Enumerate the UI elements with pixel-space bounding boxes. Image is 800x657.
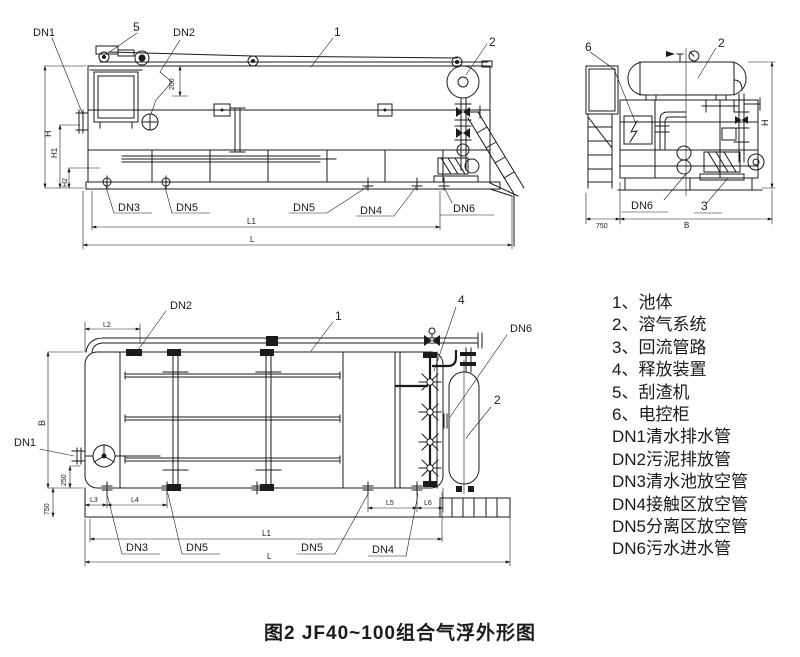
side-dn1-label: DN1 [33,27,55,39]
dn1-nozzle [76,110,88,133]
dim-l-label: L [250,235,255,244]
plan-part2-label: 2 [494,393,501,407]
scraper-mechanism [96,46,488,67]
end-part3-label: 3 [701,199,708,213]
drawing-page: H H1 H2 200 L1 L DN1 5 DN2 1 2 DN3 DN5 D… [0,0,800,657]
side-ladder [468,112,524,246]
plan-dn1-label: DN1 [14,437,36,449]
dim-h-label: H [43,131,53,138]
plan-dn6-label: DN6 [510,323,532,335]
end-part6-label: 6 [585,40,592,54]
plan-dim-750-label: 750 [44,503,51,515]
electric-panel [624,116,652,144]
recycle-pump [434,158,479,182]
end-dim-750-label: 750 [596,223,608,230]
legend-item: 5、刮渣机 [612,382,797,404]
side-dn3-label: DN3 [118,202,140,214]
side-part5-label: 5 [133,20,140,34]
plan-dim-l3-label: L3 [90,497,98,504]
air-dissolving-unit [447,66,480,170]
pressure-tank [628,51,746,100]
scraper-shafts [125,349,340,491]
plan-view-dimensions: L2 B 250 750 L3 L4 L5 L6 L1 L [37,322,510,566]
plan-dim-l6-label: L6 [424,500,432,507]
legend-item: 3、回流管路 [612,337,797,359]
parts-legend: 1、池体 2、溶气系统 3、回流管路 4、释放装置 5、刮渣机 6、电控柜 DN… [612,292,797,561]
side-view-linework [76,46,524,246]
plan-walkway [85,488,510,517]
plan-dim-250-label: 250 [61,474,68,486]
downcomer-pipe [230,108,245,152]
legend-item: 2、溶气系统 [612,314,797,336]
plan-dim-l2-label: L2 [103,322,111,329]
plan-dim-l1-label: L1 [262,529,271,538]
plan-part1-label: 1 [335,309,342,323]
end-ladder [588,114,612,188]
end-dn6-label: DN6 [631,200,653,212]
plan-dn5-left-label: DN5 [186,542,208,554]
side-dn5-right-label: DN5 [293,202,315,214]
legend-item: DN1清水排水管 [612,426,797,448]
dim-l1-label: L1 [247,217,256,226]
end-view-dimensions: H 750 B [586,62,775,230]
legend-item: DN6污水进水管 [612,538,797,560]
plan-view: L2 B 250 750 L3 L4 L5 L6 L1 L DN2 1 4 DN… [14,293,532,566]
control-cabinet [586,66,618,114]
side-view: H H1 H2 200 L1 L DN1 5 DN2 1 2 DN3 DN5 D… [33,20,524,249]
side-part2-label: 2 [489,35,496,49]
end-view: H 750 B 6 2 DN6 3 [585,36,775,230]
figure-caption: 图2 JF40~100组合气浮外形图 [0,618,800,645]
legend-item: 4、释放装置 [612,359,797,381]
plan-view-linework [72,328,510,517]
end-dim-h-label: H [760,120,770,127]
side-dn6-label: DN6 [453,203,475,215]
plan-dim-l4-label: L4 [131,497,139,504]
plan-dn4-label: DN4 [372,544,394,556]
plan-dn2-label: DN2 [170,300,192,312]
side-part1-label: 1 [334,25,341,39]
legend-item: DN3清水池放空管 [612,471,797,493]
plan-part4-label: 4 [458,293,465,307]
legend-item: 6、电控柜 [612,404,797,426]
legend-item: DN5分离区放空管 [612,516,797,538]
handwheel-valve [85,445,160,467]
plan-dim-l-label: L [267,552,272,561]
end-view-linework [586,48,764,196]
legend-item: DN4接触区放空管 [612,494,797,516]
plan-dn3-label: DN3 [126,542,148,554]
sludge-hopper [90,70,142,128]
plan-pressure-tank [444,348,479,494]
legend-item: DN2污泥排放管 [612,449,797,471]
end-part2-label: 2 [718,36,725,50]
dim-h2-label: H2 [62,178,69,187]
legend-item: 1、池体 [612,292,797,314]
side-dn5-left-label: DN5 [176,202,198,214]
plan-dim-b-label: B [37,420,47,426]
side-dn2-label: DN2 [173,27,195,39]
plan-dim-l5-label: L5 [386,500,394,507]
dim-h1-label: H1 [50,147,59,158]
side-dn4-label: DN4 [360,205,382,217]
end-view-labels: 6 2 DN6 3 [585,36,728,213]
end-dim-b-label: B [684,221,689,230]
plan-dn5-right-label: DN5 [301,542,323,554]
